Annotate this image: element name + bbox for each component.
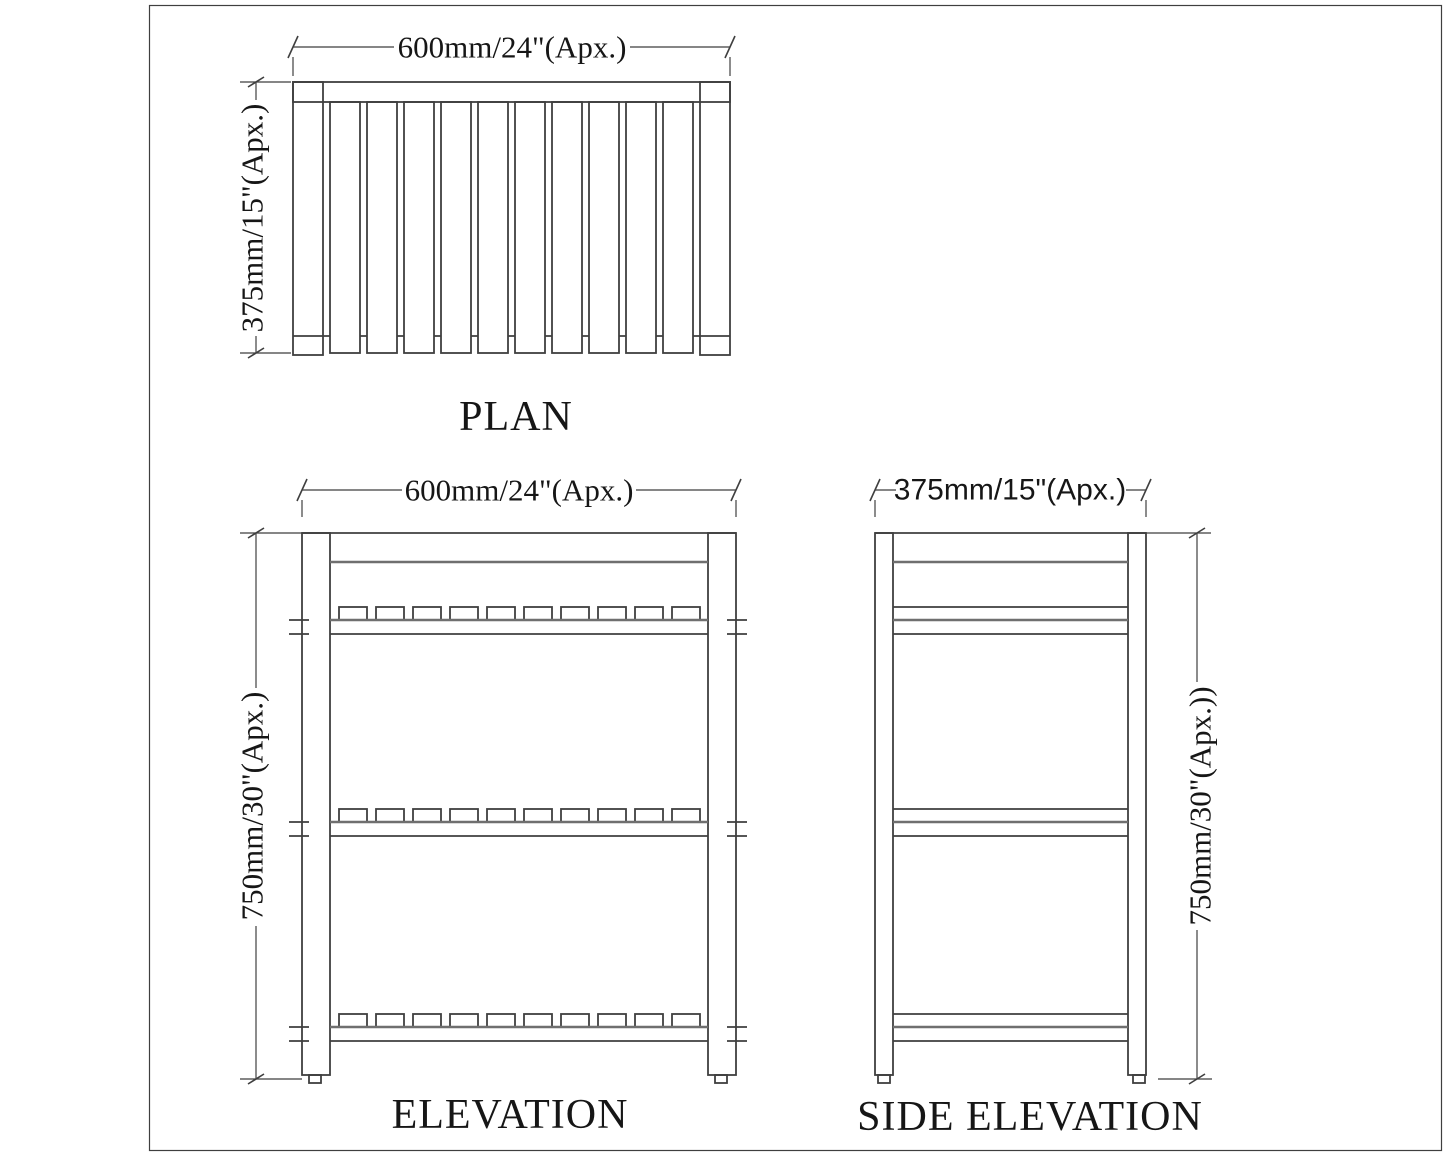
elevation-width-dimension: 600mm/24"(Apx.): [297, 473, 741, 518]
side-width-label: 375mm/15"(Apx.): [894, 474, 1126, 507]
side-elevation-title: SIDE ELEVATION: [857, 1094, 1203, 1140]
plan-width-dimension: 600mm/24"(Apx.): [288, 30, 735, 77]
plan-slats: [323, 102, 700, 353]
side-width-dimension: 375mm/15"(Apx.): [870, 473, 1151, 517]
elevation-shelf-top: [289, 607, 747, 634]
elevation-title: ELEVATION: [392, 1092, 629, 1138]
elevation-feet: [309, 1075, 727, 1083]
plan-width-label: 600mm/24"(Apx.): [398, 30, 627, 65]
elevation-width-label: 600mm/24"(Apx.): [405, 473, 634, 508]
side-top-rail: [875, 533, 1146, 562]
elevation-shelf-middle: [289, 809, 747, 836]
sheet-border: [150, 6, 1442, 1151]
side-posts: [875, 533, 1146, 1075]
elevation-top-rail: [302, 533, 736, 562]
elevation-shelf-bottom: [289, 1014, 747, 1041]
plan-view: 600mm/24"(Apx.) 375mm/15"(Apx.) PLAN: [235, 30, 736, 441]
plan-top-rail: [293, 82, 730, 102]
side-shelf-middle: [893, 809, 1128, 836]
drawing-sheet: 600mm/24"(Apx.) 375mm/15"(Apx.) PLAN: [0, 0, 1445, 1156]
side-shelf-top: [893, 607, 1128, 634]
elevation-height-dimension: 750mm/30"(Apx.): [235, 528, 303, 1084]
side-feet: [878, 1075, 1145, 1083]
side-height-dimension: 750mm/30"(Apx.)): [1146, 528, 1218, 1084]
plan-corner-posts: [293, 82, 730, 355]
plan-depth-label: 375mm/15"(Apx.): [235, 104, 270, 333]
elevation-height-label: 750mm/30"(Apx.): [235, 692, 270, 921]
side-height-label: 750mm/30"(Apx.)): [1183, 686, 1218, 925]
plan-title: PLAN: [459, 394, 573, 440]
plan-depth-dimension: 375mm/15"(Apx.): [235, 77, 292, 358]
side-elevation-view: 375mm/15"(Apx.) 750mm/30"(Apx.)) SIDE EL…: [857, 473, 1217, 1140]
side-shelf-bottom: [893, 1014, 1128, 1041]
elevation-view: 600mm/24"(Apx.) 750mm/30"(Apx.) ELEVATIO…: [235, 473, 748, 1139]
